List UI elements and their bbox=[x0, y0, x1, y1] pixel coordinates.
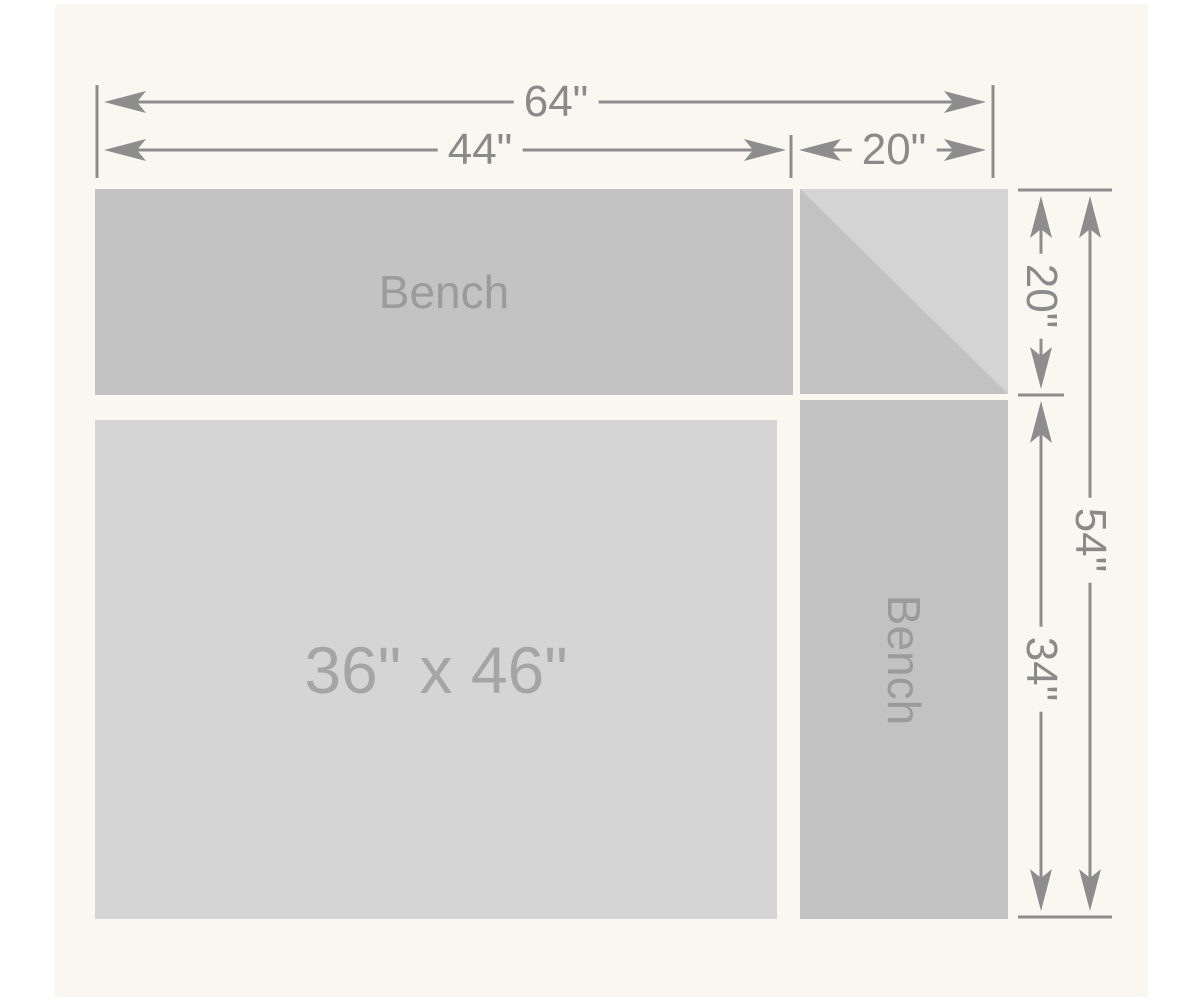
dim-label-54: 54" bbox=[1068, 498, 1112, 583]
arrowheads-group bbox=[104, 91, 1101, 911]
dimension-lines-layer bbox=[0, 0, 1200, 1000]
dimension-lines-group bbox=[97, 85, 1112, 917]
dim-label-20-top: 20" bbox=[852, 128, 937, 172]
diagram-canvas: Bench 36" x 46" Bench bbox=[0, 0, 1200, 1000]
dim-label-20-right: 20" bbox=[1019, 254, 1063, 339]
dim-label-64: 64" bbox=[514, 80, 599, 124]
dim-label-44: 44" bbox=[438, 128, 523, 172]
dim-label-34: 34" bbox=[1019, 627, 1063, 712]
